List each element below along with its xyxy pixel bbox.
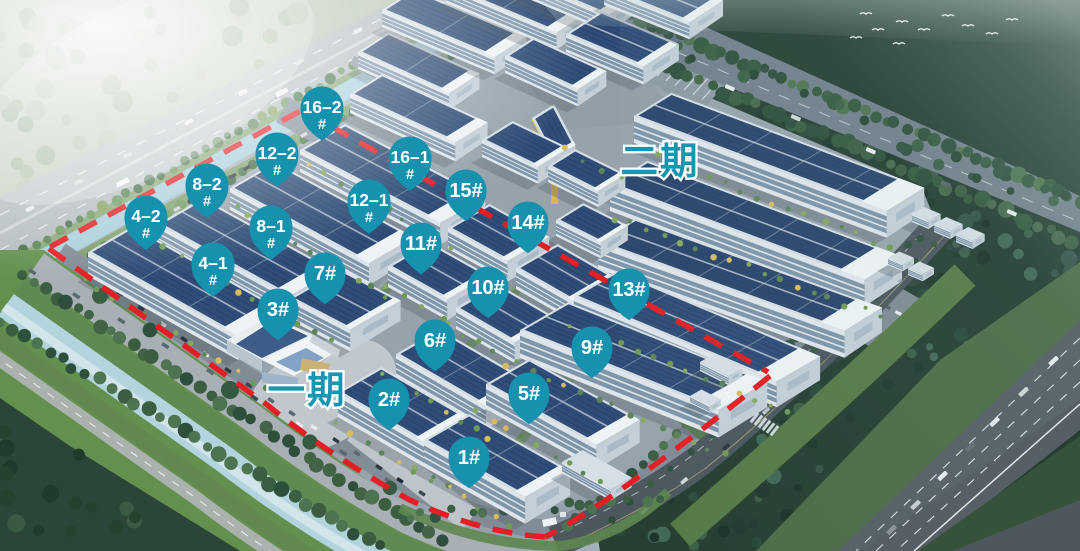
svg-text:12–1: 12–1 [350,190,389,210]
svg-text:#: # [142,226,150,242]
svg-text:11#: 11# [405,233,437,255]
svg-text:10#: 10# [471,277,504,299]
svg-text:#: # [209,273,217,289]
svg-text:16–1: 16–1 [391,147,430,167]
svg-text:12–2: 12–2 [258,143,297,163]
svg-text:#: # [406,167,414,183]
svg-text:9#: 9# [581,337,603,359]
svg-text:7#: 7# [314,263,336,285]
svg-text:6#: 6# [424,330,446,352]
svg-text:一期: 一期 [268,369,347,411]
svg-text:3#: 3# [267,299,289,321]
svg-text:8–2: 8–2 [192,174,221,194]
svg-text:1#: 1# [458,447,480,469]
svg-text:4–1: 4–1 [198,253,227,273]
svg-text:#: # [203,194,211,210]
svg-text:15#: 15# [449,180,482,202]
svg-text:4–2: 4–2 [131,206,160,226]
svg-text:14#: 14# [511,212,544,234]
svg-text:5#: 5# [518,383,540,405]
svg-text:#: # [318,117,326,133]
svg-text:13#: 13# [612,279,645,301]
svg-text:#: # [273,163,281,179]
svg-text:#: # [267,236,275,252]
svg-text:16–2: 16–2 [303,97,342,117]
svg-text:二期: 二期 [621,140,700,182]
svg-text:2#: 2# [378,389,400,411]
svg-text:#: # [365,210,373,226]
svg-text:8–1: 8–1 [256,216,285,236]
